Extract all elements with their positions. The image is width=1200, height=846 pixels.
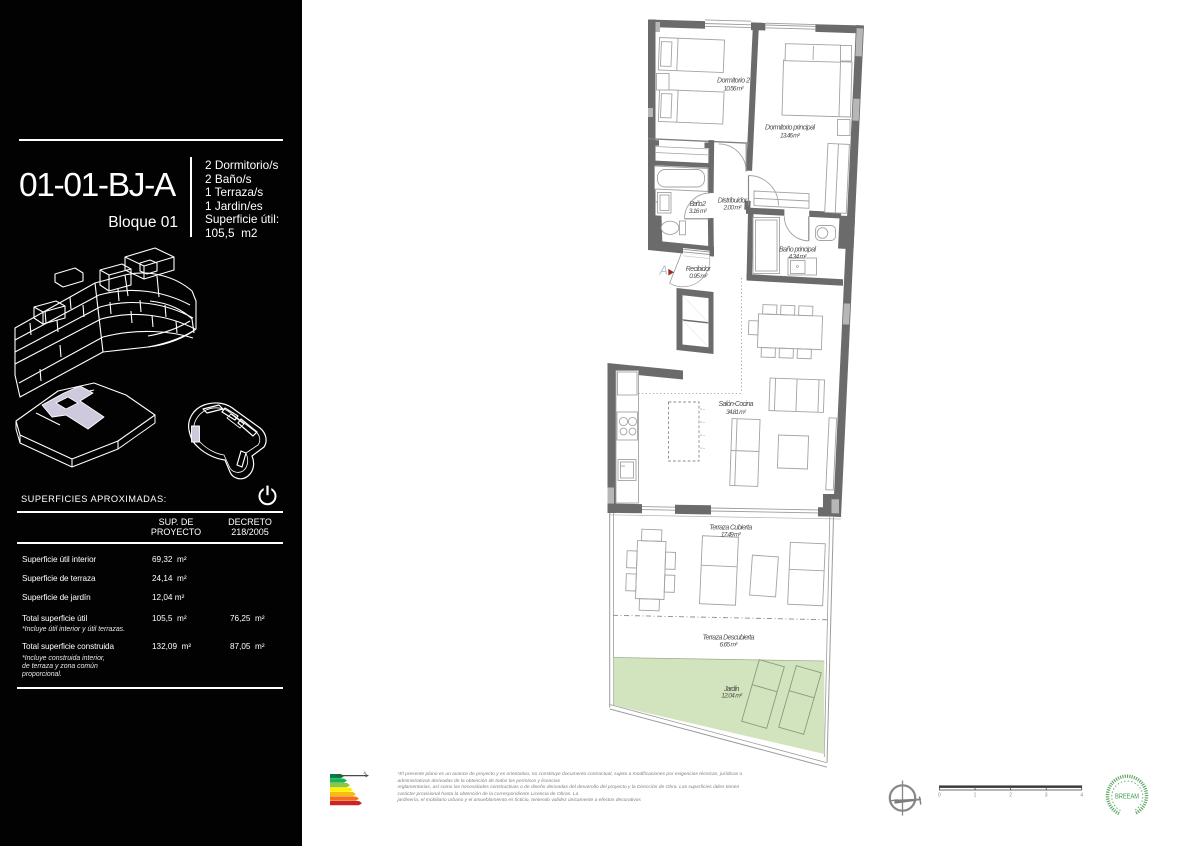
svg-text:Distribuidor: Distribuidor	[718, 197, 748, 204]
svg-text:BREEAM: BREEAM	[1115, 794, 1139, 801]
svg-text:6.65 m²: 6.65 m²	[720, 642, 739, 649]
svg-text:3: 3	[1045, 793, 1048, 799]
svg-text:0.95 m²: 0.95 m²	[689, 273, 708, 280]
svg-text:Baño principal: Baño principal	[779, 246, 816, 253]
svg-text:2.00 m²: 2.00 m²	[723, 204, 743, 211]
svg-text:4: 4	[1080, 793, 1083, 799]
svg-text:Dormitorio principal: Dormitorio principal	[765, 124, 815, 131]
svg-text:0: 0	[938, 793, 941, 799]
svg-text:3.16 m²: 3.16 m²	[689, 208, 708, 215]
svg-text:12.04 m²: 12.04 m²	[721, 693, 743, 700]
svg-text:Dormitorio 2: Dormitorio 2	[717, 77, 750, 84]
svg-text:Recibidor: Recibidor	[686, 266, 712, 273]
svg-text:Baño 2: Baño 2	[690, 201, 707, 208]
svg-text:A: A	[364, 770, 367, 775]
svg-text:4.34 m²: 4.34 m²	[789, 253, 808, 260]
svg-text:34.81 m²: 34.81 m²	[726, 409, 747, 416]
svg-text:17.49 m²: 17.49 m²	[721, 532, 742, 539]
svg-text:Terraza Descubierta: Terraza Descubierta	[703, 635, 755, 642]
svg-text:Terraza Cubierta: Terraza Cubierta	[709, 525, 752, 532]
svg-text:13.46 m²: 13.46 m²	[780, 132, 801, 139]
svg-text:2: 2	[1009, 793, 1012, 799]
svg-text:A: A	[659, 264, 668, 278]
svg-text:Salón-Cocina: Salón-Cocina	[719, 401, 754, 408]
svg-text:10.56 m²: 10.56 m²	[724, 85, 745, 92]
svg-text:1: 1	[974, 793, 977, 799]
